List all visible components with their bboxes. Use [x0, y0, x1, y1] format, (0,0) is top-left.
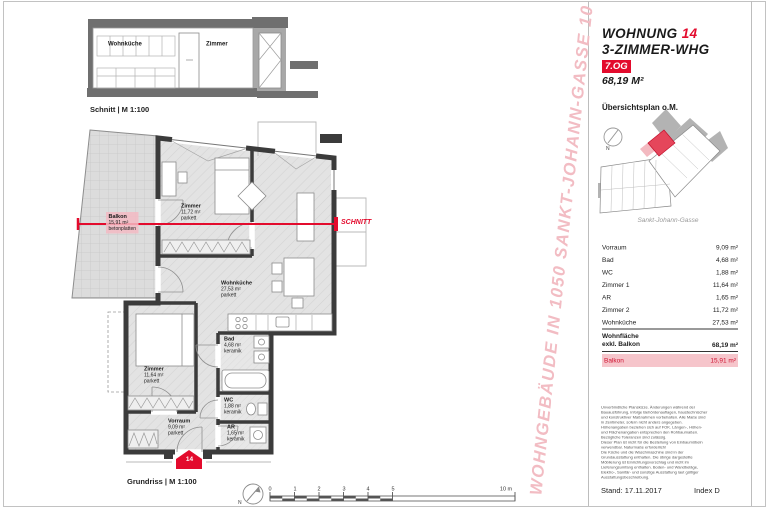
entrance-number: 14 — [177, 456, 202, 463]
table-row: Zimmer 111,64 m² — [602, 279, 738, 292]
plan-sheet: WOHNGEBÄUDE IN 1050 SANKT-JOHANN-GASSE 1… — [0, 0, 768, 520]
room-label-ar: AR 1,65 m² keramik — [227, 424, 245, 442]
scale-tick-2: 2 — [307, 486, 331, 492]
floor-badge: 7.OG — [602, 60, 631, 73]
floor-plan — [72, 122, 366, 469]
scale-tick-0: 0 — [258, 486, 282, 492]
disclaimer-text: Unverbindliche Planskizze. Änderungen wä… — [601, 405, 741, 480]
site-plan — [598, 109, 728, 213]
unit-title: WOHNUNG 14 — [602, 26, 698, 41]
schnitt-label: SCHNITT — [341, 219, 371, 226]
room-label-balkon: Balkon 15,91 m² betonplatten — [106, 212, 139, 233]
street-label: Sankt-Johann-Gasse — [600, 216, 736, 224]
section-caption: Schnitt | M 1:100 — [90, 105, 149, 114]
room-label-zimmer1: Zimmer 11,64 m² parkett — [144, 366, 164, 384]
unit-area: 68,19 M² — [602, 75, 643, 87]
table-balkon-row: Balkon 15,91 m² — [602, 354, 738, 367]
table-total-row: Wohnfläche exkl. Balkon 68,19 m² — [602, 329, 738, 352]
balcony-lower-dashed — [108, 312, 126, 392]
unit-number: 14 — [682, 26, 698, 41]
unit-title-text: WOHNUNG — [602, 26, 678, 41]
room-label-bad: Bad 4,68 m² keramik — [224, 336, 242, 354]
table-row: WC1,88 m² — [602, 266, 738, 279]
area-table: Vorraum9,09 m² Bad4,68 m² WC1,88 m² Zimm… — [602, 241, 738, 367]
scale-tick-4: 4 — [356, 486, 380, 492]
scale-tick-3: 3 — [332, 486, 356, 492]
site-compass-label: N — [606, 146, 610, 152]
scale-tick-1: 1 — [283, 486, 307, 492]
section-drawing — [87, 17, 318, 98]
revision-index: Index D — [694, 486, 720, 495]
plan-compass-label: N — [238, 500, 242, 506]
scale-end-label: 10 m — [494, 486, 518, 492]
overview-title: Übersichtsplan o.M. — [602, 103, 678, 112]
room-label-wc: WC 1,88 m² keramik — [224, 397, 242, 415]
room-label-wohnkueche: Wohnküche 27,53 m² parkett — [221, 280, 252, 298]
section-room-label-wohnkueche: Wohnküche — [108, 40, 142, 47]
scale-tick-5: 5 — [381, 486, 405, 492]
revision-date: Stand: 17.11.2017 — [601, 486, 662, 495]
section-door — [179, 33, 199, 88]
room-label-vorraum: Vorraum 9,09 m² parkett — [168, 418, 190, 436]
unit-type: 3-ZIMMER-WHG — [602, 42, 710, 57]
table-row: Wohnküche27,53 m² — [602, 316, 738, 329]
scale-bar — [270, 492, 515, 501]
grundriss-caption: Grundriss | M 1:100 — [127, 477, 197, 486]
table-row: AR1,65 m² — [602, 291, 738, 304]
table-row: Vorraum9,09 m² — [602, 241, 738, 254]
section-room-label-zimmer: Zimmer — [206, 40, 228, 47]
room-label-zimmer2: Zimmer 11,72 m² parkett — [181, 203, 201, 221]
table-row: Bad4,68 m² — [602, 254, 738, 267]
table-row: Zimmer 211,72 m² — [602, 304, 738, 317]
